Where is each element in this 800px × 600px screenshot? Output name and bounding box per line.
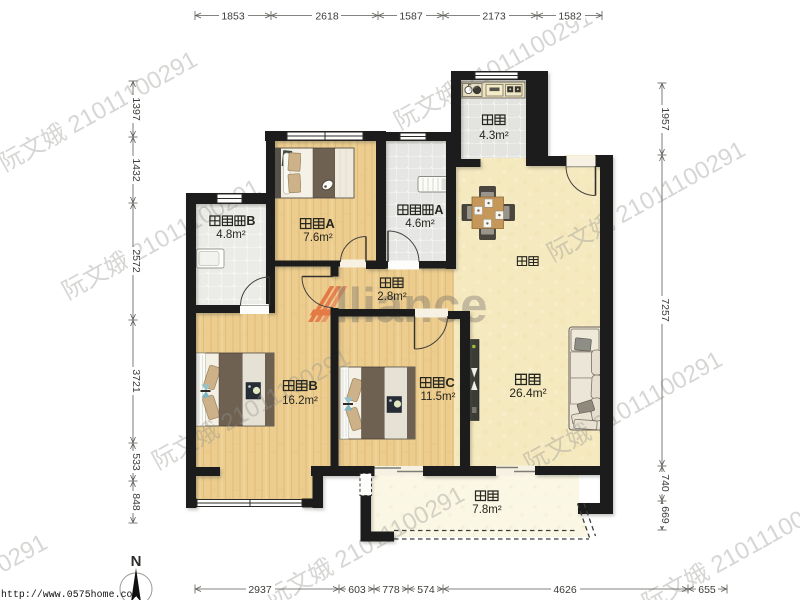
svg-text:740: 740 xyxy=(659,474,671,492)
svg-text:16.2m²: 16.2m² xyxy=(282,395,318,407)
svg-text:848: 848 xyxy=(130,493,142,511)
svg-text:26.4m²: 26.4m² xyxy=(509,386,546,400)
svg-text:7257: 7257 xyxy=(659,298,671,322)
svg-text:778: 778 xyxy=(382,584,400,596)
svg-text:7.6m²: 7.6m² xyxy=(303,232,333,244)
svg-text:574: 574 xyxy=(417,584,435,596)
svg-text:A: A xyxy=(434,203,443,217)
svg-text:669: 669 xyxy=(659,506,671,524)
svg-text:4.8m²: 4.8m² xyxy=(216,229,246,241)
svg-text:4.6m²: 4.6m² xyxy=(405,218,435,230)
svg-text:1957: 1957 xyxy=(659,107,671,131)
svg-text:11.5m²: 11.5m² xyxy=(421,391,456,403)
svg-text:B: B xyxy=(246,214,255,228)
svg-text:2937: 2937 xyxy=(248,584,272,596)
svg-text:N: N xyxy=(131,553,142,570)
svg-text:1432: 1432 xyxy=(130,158,142,182)
svg-text:603: 603 xyxy=(348,584,366,596)
svg-text:A: A xyxy=(325,216,335,231)
svg-text:1853: 1853 xyxy=(221,11,245,23)
svg-text:2.8m²: 2.8m² xyxy=(377,291,407,303)
svg-text:3721: 3721 xyxy=(130,369,142,393)
svg-text:1587: 1587 xyxy=(399,11,423,23)
svg-text:2173: 2173 xyxy=(482,11,506,23)
svg-text:C: C xyxy=(445,375,455,390)
svg-text:533: 533 xyxy=(130,453,142,471)
svg-text:http://www.0575home.com: http://www.0575home.com xyxy=(1,589,139,600)
svg-text:B: B xyxy=(308,378,317,393)
svg-text:2618: 2618 xyxy=(315,11,339,23)
svg-text:655: 655 xyxy=(698,584,716,596)
svg-text:2572: 2572 xyxy=(130,249,142,273)
svg-text:1582: 1582 xyxy=(558,11,582,23)
svg-text:4.3m²: 4.3m² xyxy=(479,130,509,142)
svg-text:4626: 4626 xyxy=(553,584,577,596)
svg-text:7.8m²: 7.8m² xyxy=(472,504,502,516)
svg-text:1397: 1397 xyxy=(130,97,142,121)
